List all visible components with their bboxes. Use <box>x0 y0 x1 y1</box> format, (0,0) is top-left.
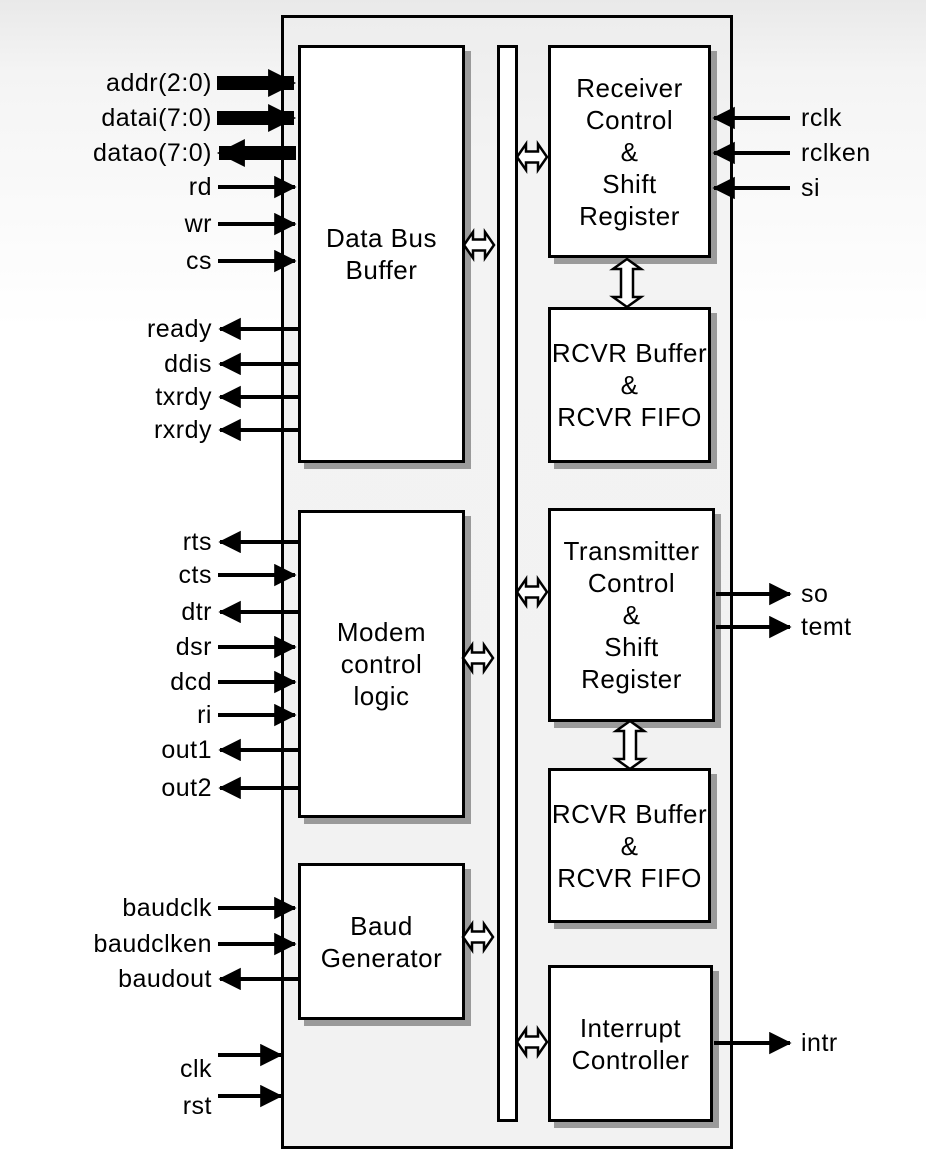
bidir-arrow-baud-bus <box>463 924 493 950</box>
signal-label-datai: datai(7:0) <box>101 105 212 131</box>
signal-label-rd: rd <box>189 174 212 200</box>
signal-label-rxrdy: rxrdy <box>154 417 212 443</box>
signal-label-cts: cts <box>179 562 212 588</box>
bidir-arrow-databusbuffer-bus <box>464 232 494 258</box>
bidir-arrow-transmitter-rcvrbuffer <box>616 721 644 769</box>
signal-label-dcd: dcd <box>170 669 212 695</box>
signal-label-clk: clk <box>180 1056 212 1082</box>
uart-block-diagram: Data Bus Buffer Modem control logic Baud… <box>0 0 926 1172</box>
bidir-arrow-receiver-rcvrbuffer <box>613 259 641 307</box>
signal-label-rclk: rclk <box>801 105 842 131</box>
signal-label-so: so <box>801 581 828 607</box>
bidir-arrow-bus-receiver <box>517 144 547 170</box>
signal-label-ready: ready <box>147 316 212 342</box>
bidir-arrow-bus-interrupt <box>517 1029 547 1055</box>
signal-label-ri: ri <box>197 702 212 728</box>
signal-arrows-layer <box>0 0 926 1172</box>
signal-label-dsr: dsr <box>176 634 212 660</box>
signal-label-rts: rts <box>183 529 212 555</box>
signal-label-wr: wr <box>185 211 212 237</box>
signal-label-baudout: baudout <box>118 966 212 992</box>
signal-label-txrdy: txrdy <box>155 384 212 410</box>
signal-label-baudclken: baudclken <box>94 931 212 957</box>
signal-label-cs: cs <box>186 248 212 274</box>
signal-label-si: si <box>801 175 820 201</box>
signal-label-ddis: ddis <box>164 351 212 377</box>
signal-label-out2: out2 <box>161 775 212 801</box>
signal-label-dtr: dtr <box>181 599 212 625</box>
bidir-arrow-modem-bus <box>463 645 493 671</box>
signal-label-out1: out1 <box>161 737 212 763</box>
signal-label-baudclk: baudclk <box>122 895 212 921</box>
bidir-arrow-bus-transmitter <box>517 579 547 605</box>
signal-label-addr: addr(2:0) <box>106 70 212 96</box>
signal-label-rclken: rclken <box>801 140 871 166</box>
signal-label-datao: datao(7:0) <box>93 140 212 166</box>
signal-label-rst: rst <box>183 1093 212 1119</box>
signal-label-temt: temt <box>801 614 852 640</box>
signal-label-intr: intr <box>801 1030 838 1056</box>
